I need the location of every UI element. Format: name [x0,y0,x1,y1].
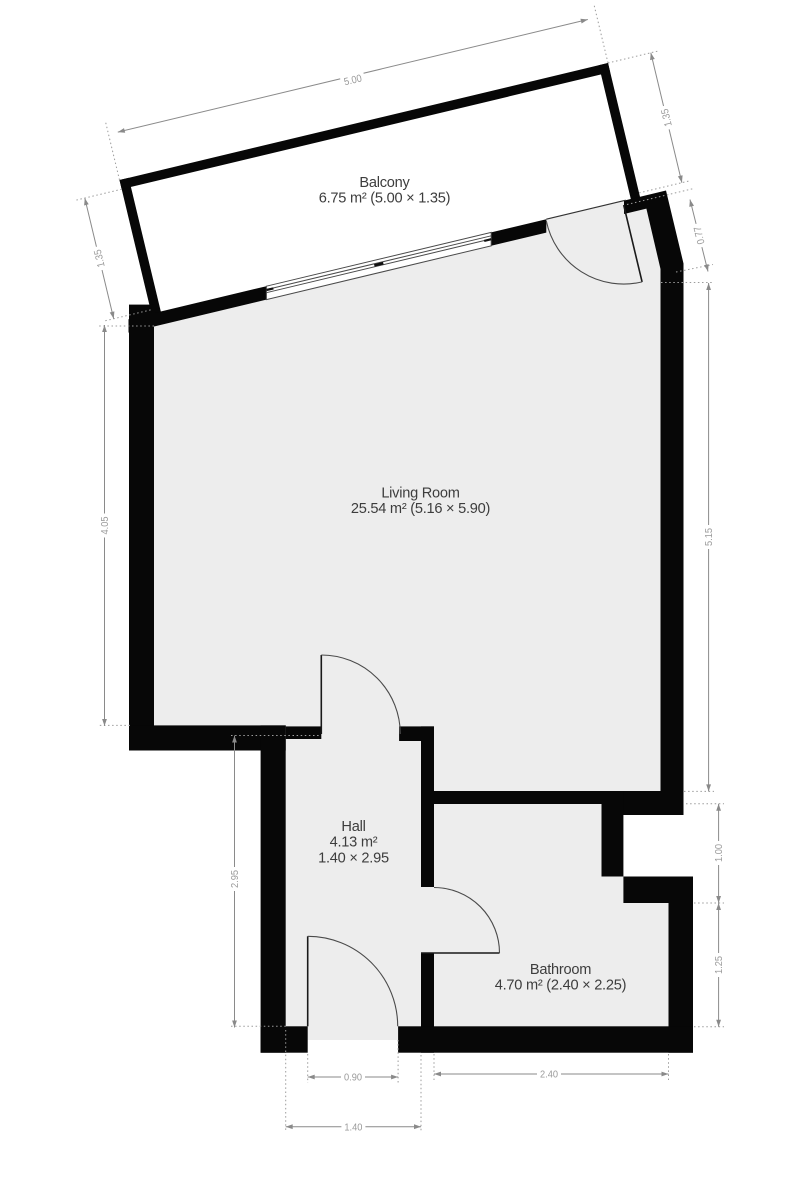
svg-text:Balcony: Balcony [359,175,410,191]
svg-text:1.40: 1.40 [344,1122,362,1133]
svg-text:6.75 m² (5.00 × 1.35): 6.75 m² (5.00 × 1.35) [319,191,450,207]
svg-text:5.15: 5.15 [704,528,715,546]
svg-text:2.95: 2.95 [230,870,241,888]
svg-text:1.25: 1.25 [714,956,725,974]
svg-text:4.13 m²: 4.13 m² [330,835,378,851]
svg-text:1.35: 1.35 [93,248,108,268]
svg-text:2.40: 2.40 [540,1070,558,1081]
svg-text:Living Room: Living Room [381,485,459,501]
svg-text:0.90: 0.90 [344,1073,362,1084]
svg-text:1.40 × 2.95: 1.40 × 2.95 [318,850,389,866]
svg-text:1.35: 1.35 [660,107,675,127]
svg-text:0.77: 0.77 [693,225,708,245]
svg-text:Bathroom: Bathroom [530,962,591,978]
svg-text:1.00: 1.00 [714,844,725,862]
svg-text:Hall: Hall [341,819,365,835]
svg-text:4.70 m² (2.40 × 2.25): 4.70 m² (2.40 × 2.25) [495,978,626,994]
svg-text:5.00: 5.00 [343,73,363,88]
svg-text:25.54 m² (5.16 × 5.90): 25.54 m² (5.16 × 5.90) [351,501,490,517]
svg-text:4.05: 4.05 [100,516,111,534]
